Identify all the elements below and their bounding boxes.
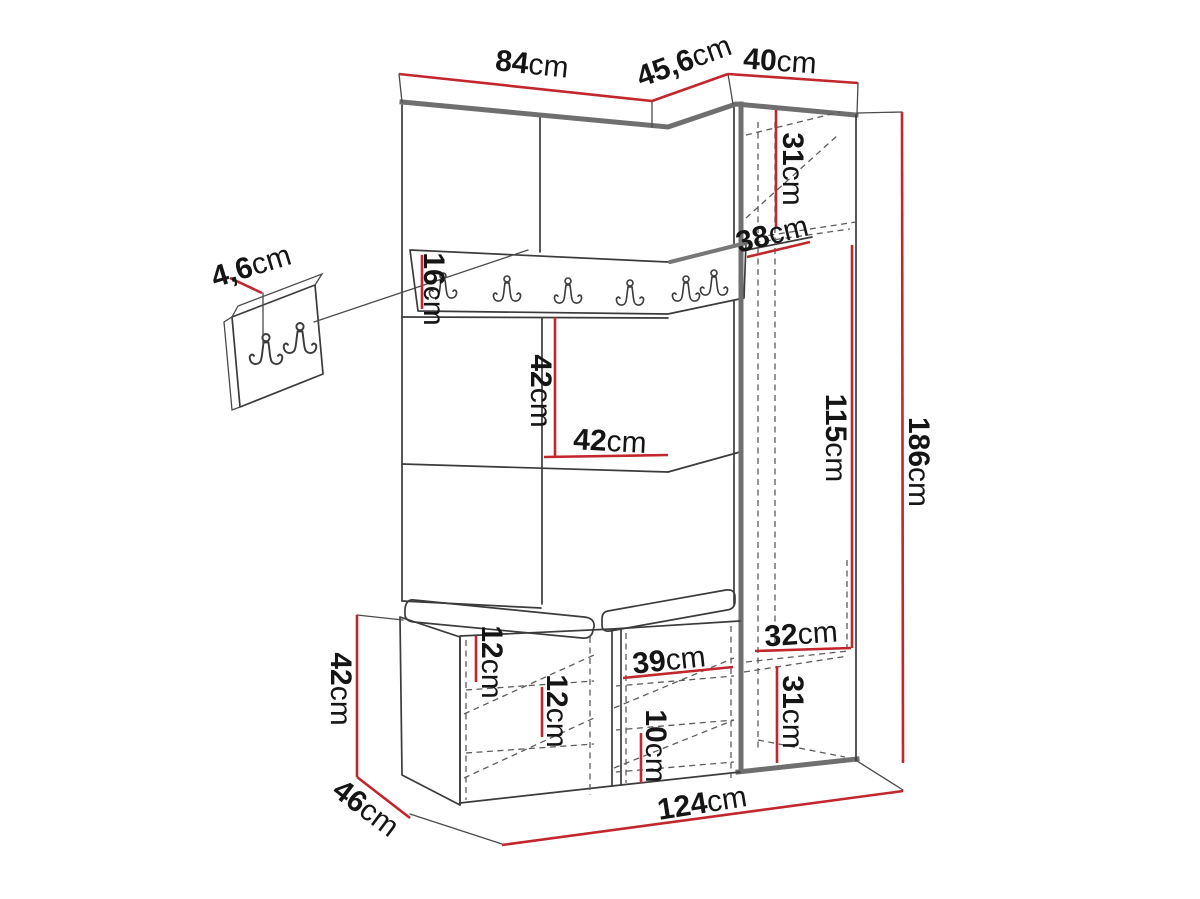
dim-label-4-6cm: 4,6cm <box>207 238 295 293</box>
dimension-labels: 84cm 45,6cm 40cm 31cm 38cm 16cm 4,6cm 42… <box>207 29 935 844</box>
dim-label-12cm-a: 12cm <box>476 625 509 698</box>
dim-label-40cm: 40cm <box>742 42 817 80</box>
dim-label-32cm: 32cm <box>763 615 838 653</box>
dim-label-42cm-horizontal: 42cm <box>572 423 647 460</box>
dim-label-31cm-top: 31cm <box>777 132 810 205</box>
dim-label-42cm-bench: 42cm <box>325 652 358 725</box>
dim-label-45-6cm: 45,6cm <box>632 29 736 94</box>
dim-label-124cm: 124cm <box>655 780 749 827</box>
dim-label-186cm: 186cm <box>903 417 936 507</box>
upholstered-wall-panels <box>402 102 740 608</box>
dim-label-10cm: 10cm <box>640 709 673 782</box>
dim-label-84cm: 84cm <box>494 44 570 84</box>
dim-label-31cm-bottom: 31cm <box>777 675 810 748</box>
wardrobe-set-drawing <box>224 102 857 805</box>
furniture-dimension-diagram: 84cm 45,6cm 40cm 31cm 38cm 16cm 4,6cm 42… <box>0 0 1200 899</box>
dim-label-12cm-b: 12cm <box>541 674 574 747</box>
dim-label-42cm-vertical: 42cm <box>525 354 558 427</box>
dim-label-115cm: 115cm <box>820 394 853 482</box>
dim-label-16cm: 16cm <box>418 252 451 325</box>
diagram-canvas: 84cm 45,6cm 40cm 31cm 38cm 16cm 4,6cm 42… <box>0 0 1200 899</box>
